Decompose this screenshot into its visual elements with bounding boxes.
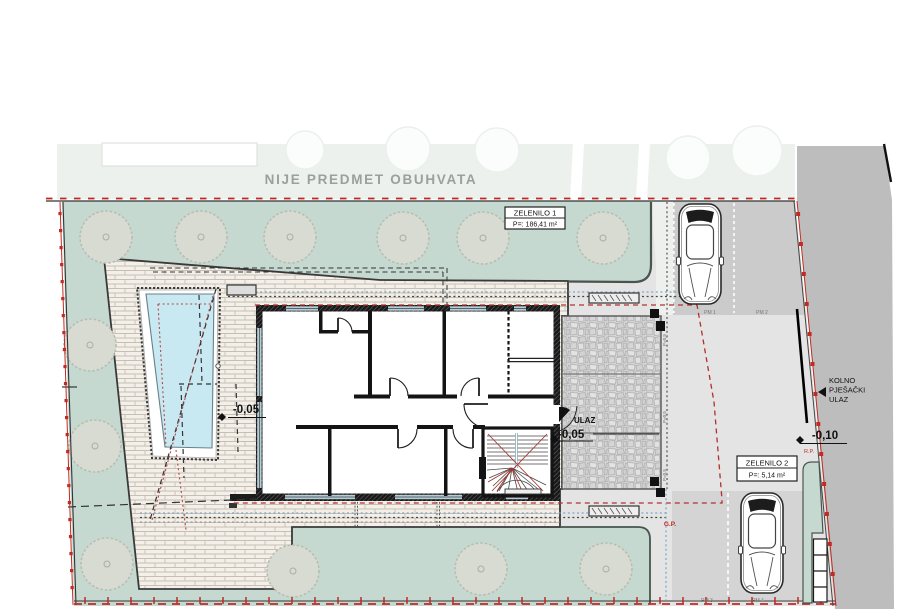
svg-text:-0,05: -0,05: [558, 429, 585, 441]
svg-text:ULAZ: ULAZ: [829, 395, 849, 404]
svg-text:P=0,5: P=0,5: [662, 411, 667, 423]
svg-text:PJEŠAČKI: PJEŠAČKI: [829, 386, 865, 395]
svg-text:KOLNO: KOLNO: [829, 376, 855, 385]
svg-text:PM 3: PM 3: [701, 598, 713, 604]
svg-text:G.P.: G.P.: [664, 521, 676, 528]
svg-text:P=0,5: P=0,5: [662, 334, 667, 346]
svg-text:P=: 186,41 m²: P=: 186,41 m²: [513, 222, 558, 229]
svg-text:-0,05: -0,05: [233, 404, 260, 416]
svg-text:R.P.: R.P.: [804, 449, 814, 455]
svg-text:P=0,5: P=0,5: [662, 469, 667, 481]
svg-text:P=: 5,14 m²: P=: 5,14 m²: [749, 473, 786, 480]
svg-text:ZELENILO 2: ZELENILO 2: [746, 459, 789, 468]
svg-text:-0,10: -0,10: [812, 430, 838, 442]
svg-text:PM 1: PM 1: [704, 310, 716, 316]
svg-text:ULAZ: ULAZ: [574, 416, 595, 425]
svg-text:PM 2: PM 2: [756, 310, 768, 316]
svg-text:ZELENILO 1: ZELENILO 1: [514, 209, 557, 218]
svg-text:NIJE PREDMET OBUHVATA: NIJE PREDMET OBUHVATA: [265, 172, 478, 187]
svg-text:PM 4: PM 4: [752, 598, 764, 604]
